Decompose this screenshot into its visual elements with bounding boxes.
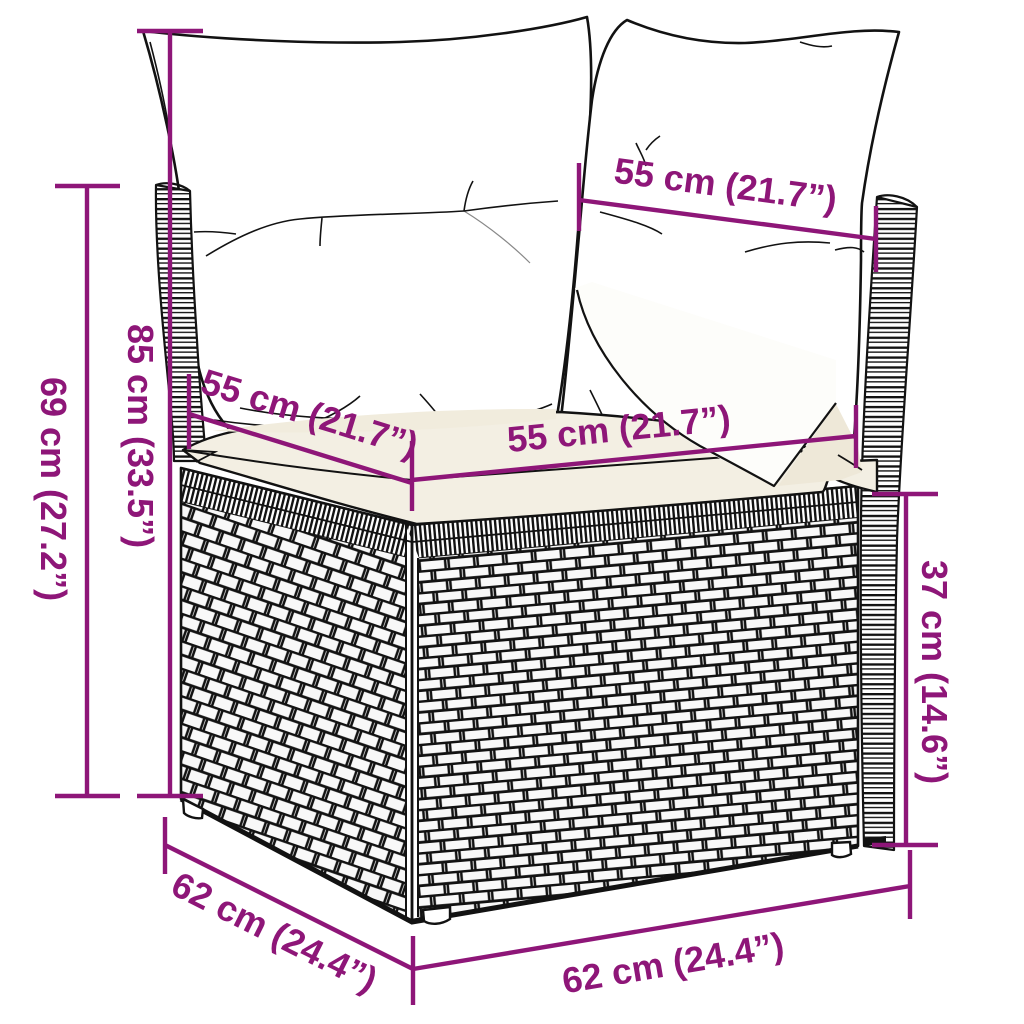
svg-text:69 cm (27.2”): 69 cm (27.2”) (33, 377, 74, 601)
svg-text:37 cm (14.6”): 37 cm (14.6”) (914, 560, 955, 784)
svg-text:85 cm (33.5”): 85 cm (33.5”) (120, 324, 161, 548)
